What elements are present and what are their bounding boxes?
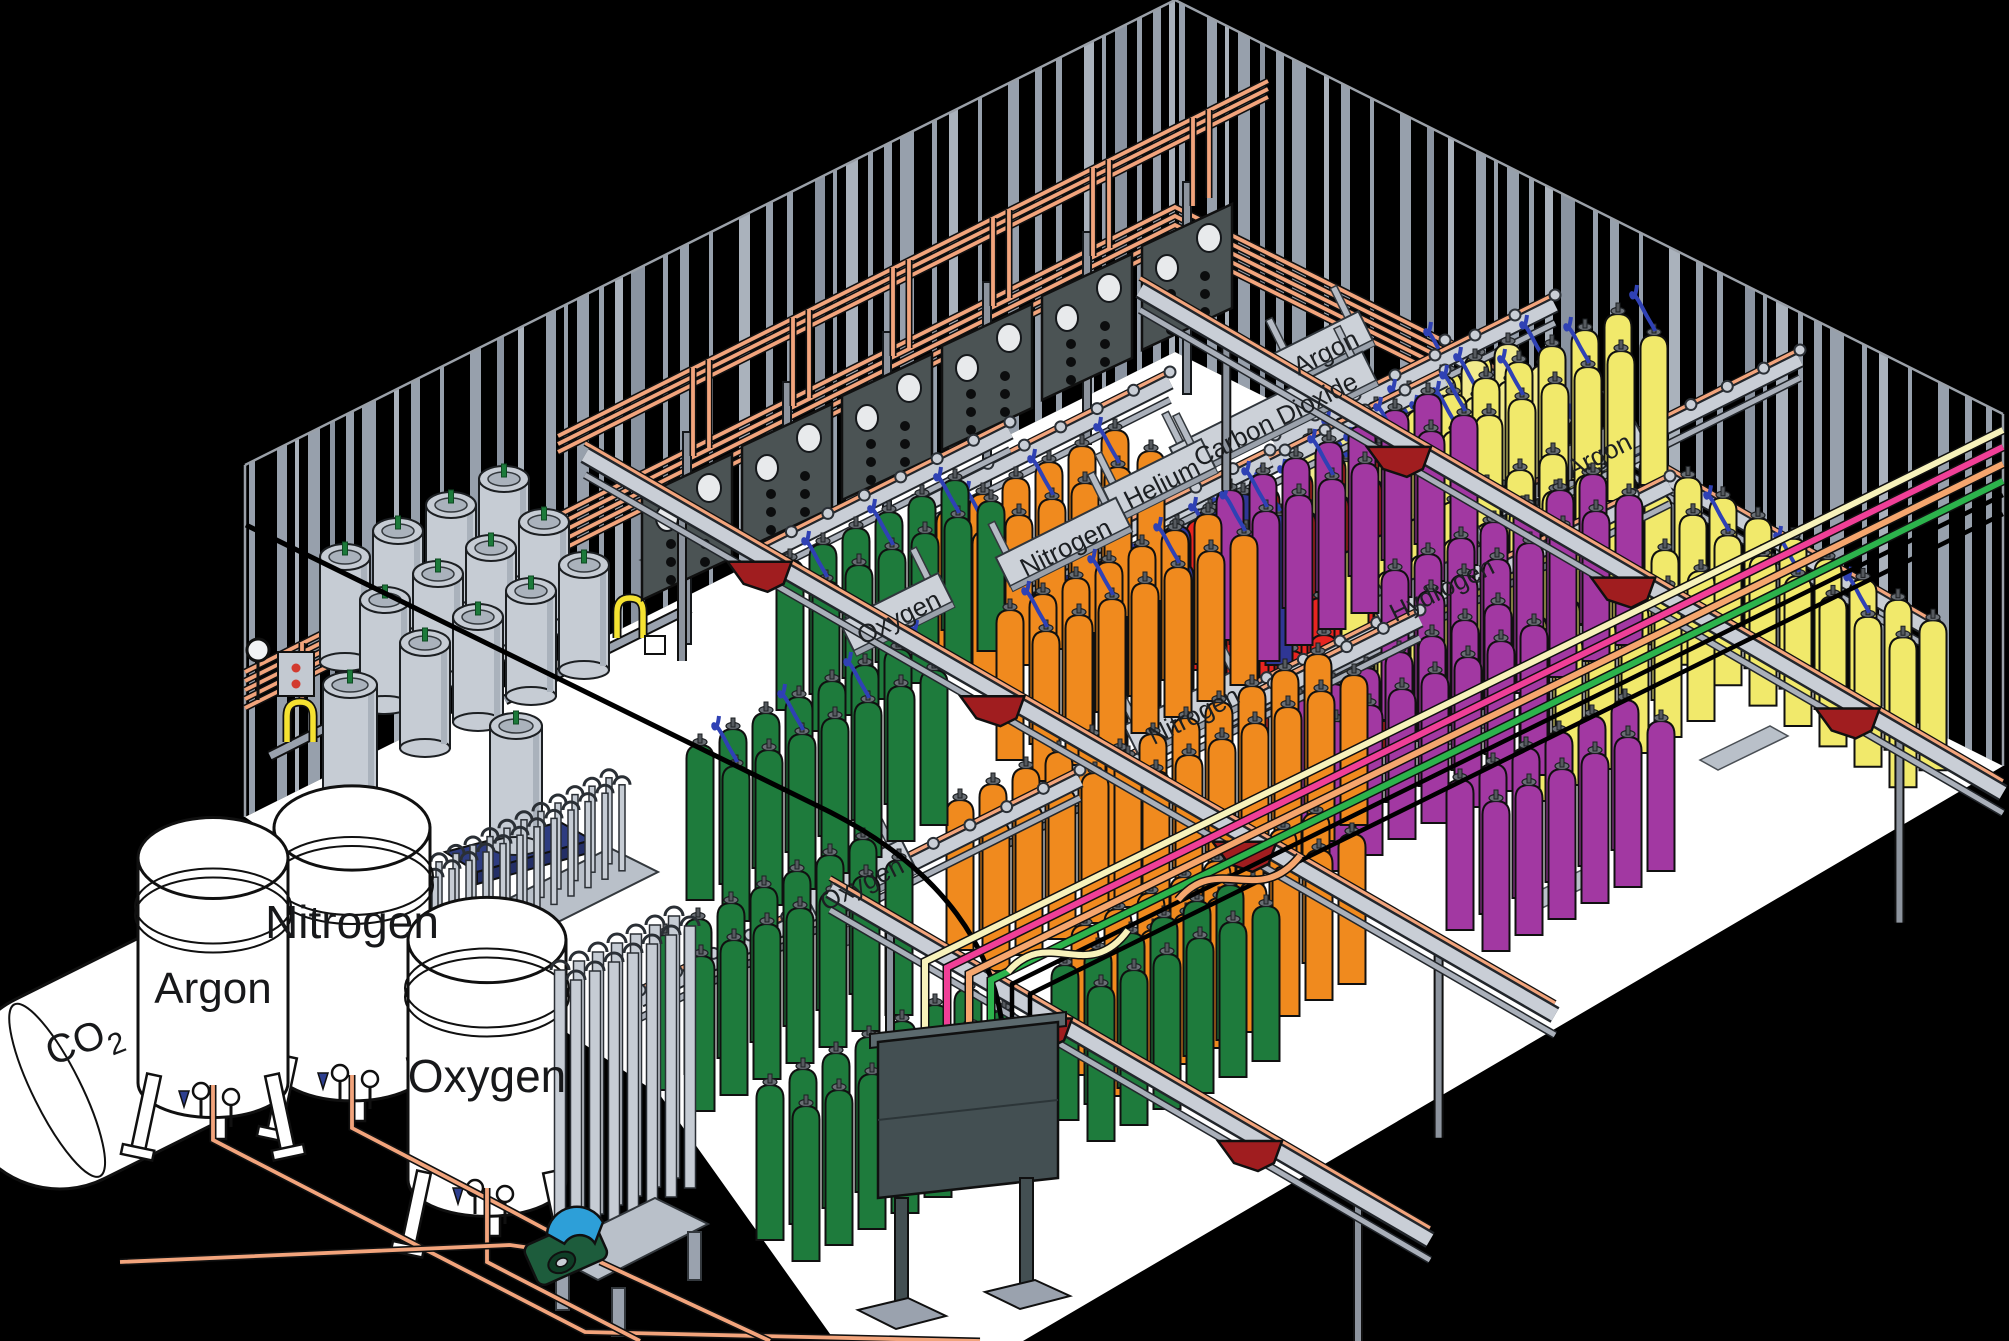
panel-port (766, 507, 776, 517)
cylinder-valve (1173, 519, 1177, 528)
cylinder-valve (1154, 760, 1158, 769)
cylinder-valve (1099, 975, 1103, 984)
cylinder-valve (833, 707, 837, 716)
cylinder-valve (821, 533, 825, 542)
regulator-fitting (1685, 399, 1696, 410)
vaporizer-fin (551, 818, 557, 904)
panel-port (866, 475, 876, 485)
cylinder-valve (1024, 757, 1028, 766)
dewar-valve (514, 711, 519, 724)
cylinder-valve (1017, 504, 1021, 513)
cylinder-valve (1113, 419, 1117, 428)
cylinder-valve (1517, 351, 1521, 360)
regulator-fitting (1341, 641, 1352, 652)
cylinder-valve (801, 1058, 805, 1067)
cylinder-valve (834, 1042, 838, 1051)
gas-cylinder (826, 1090, 853, 1245)
gas-cylinder (1165, 567, 1192, 717)
cylinder-valve (1253, 712, 1257, 721)
panel-gauge (756, 455, 778, 481)
cylinder-valve (953, 469, 957, 478)
valve-box (645, 636, 665, 654)
dewar-valve (529, 576, 534, 589)
regulator-fitting (932, 453, 943, 464)
panel-gauge (1156, 255, 1178, 281)
panel-gauge (897, 374, 921, 402)
cylinder-valve (1080, 435, 1084, 444)
panel-gauge (697, 474, 721, 502)
cylinder-valve (1619, 340, 1623, 349)
cylinder-valve (1426, 383, 1430, 392)
gas-cylinder (1648, 721, 1675, 871)
cylinder-valve (1532, 614, 1536, 623)
portable-dewar (506, 576, 556, 705)
cylinder-valve (1220, 728, 1224, 737)
cylinder-valve (788, 549, 792, 558)
dewar-valve (582, 550, 587, 563)
panel-port (800, 471, 810, 481)
cylinder-valve (1499, 630, 1503, 639)
cylinder-valve (1430, 625, 1434, 634)
cylinder-valve (899, 675, 903, 684)
regulator-fitting (1005, 417, 1016, 428)
cylinder-valve (1393, 399, 1397, 408)
regulator-fitting (1055, 421, 1066, 432)
cylinder-valve (1691, 504, 1695, 513)
cylinder-valve (1527, 774, 1531, 783)
cylinder-valve (1319, 680, 1323, 689)
cylinder-valve (1558, 479, 1562, 488)
regulator-fitting (1019, 440, 1030, 451)
cylinder-valve (1560, 758, 1564, 767)
cylinder-valve (1206, 503, 1210, 512)
regulator-fitting (1510, 310, 1521, 321)
cylinder-valve (1896, 589, 1900, 598)
cylinder-valve (870, 1063, 874, 1072)
tank-valve (223, 1089, 239, 1105)
bundle-tube (685, 926, 696, 1188)
cylinder-valve (1593, 742, 1597, 751)
cylinder-valve (1400, 678, 1404, 687)
dewar-valve (436, 559, 441, 572)
dewar-valve (476, 602, 481, 615)
gas-cylinder (1099, 599, 1126, 749)
gas-cylinder (921, 670, 948, 825)
gas-plant-scene: CO2 Argon Nitrogen Oxygen Oxygen Nitroge… (0, 0, 2009, 1341)
cylinder-valve (1506, 333, 1510, 342)
dewar-shade (494, 621, 500, 718)
regulator-fitting (1265, 445, 1276, 456)
cylinder-valve (1458, 769, 1462, 778)
cylinder-valve (857, 554, 861, 563)
cylinder-valve (699, 945, 703, 954)
vaporizer-fin (602, 793, 608, 879)
cylinder-valve (1352, 664, 1356, 673)
cylinder-valve (798, 897, 802, 906)
gas-cylinder (1198, 551, 1225, 701)
dewar-valve (489, 533, 494, 546)
panel-port (1000, 407, 1010, 417)
tank-valve (193, 1083, 209, 1099)
junction-panel-leg (1020, 1178, 1033, 1290)
bundle-tube (666, 935, 677, 1197)
cylinder-valve (765, 913, 769, 922)
cylinder-valve (1077, 604, 1081, 613)
cylinder-valve (1187, 744, 1191, 753)
junction-panel-leg (895, 1198, 908, 1308)
cylinder-valve (1663, 539, 1667, 548)
gas-cylinder (687, 745, 714, 900)
pressure-gauge (247, 639, 269, 661)
cylinder-valve (1626, 726, 1630, 735)
cylinder-valve (1484, 367, 1488, 376)
regulator-fitting (786, 526, 797, 537)
regulator-fitting (1001, 801, 1012, 812)
gas-cylinder (793, 1106, 820, 1261)
regulator-fitting (1470, 330, 1481, 341)
cylinder-valve (1132, 959, 1136, 968)
cylinder-valve (1494, 790, 1498, 799)
regulator-fitting (1550, 290, 1561, 301)
regulator-fitting (895, 471, 906, 482)
cylinder-valve (1363, 452, 1367, 461)
portable-dewar (453, 602, 503, 731)
dewar-valve (502, 464, 507, 477)
panel-port (1200, 271, 1210, 281)
cylinder-valve (828, 844, 832, 853)
dewar-valve (348, 670, 353, 683)
control-box (278, 652, 314, 696)
regulator-fitting (968, 435, 979, 446)
panel-gauge (797, 424, 821, 452)
oxygen-tank-label: Oxygen (408, 1050, 567, 1102)
vaporizer-fin (534, 827, 540, 913)
red-button (292, 680, 301, 689)
cylinder-valve (991, 773, 995, 782)
tank-dome (274, 786, 430, 870)
cylinder-valve (1107, 551, 1111, 560)
cylinder-valve (1686, 466, 1690, 475)
cylinder-valve (698, 734, 702, 743)
cylinder-valve (920, 485, 924, 494)
cylinder-valve (1047, 451, 1051, 460)
cylinder-valve (1198, 927, 1202, 936)
gas-plant-illustration: CO2 Argon Nitrogen Oxygen Oxygen Nitroge… (0, 0, 2009, 1341)
gas-cylinder (1608, 351, 1635, 501)
dewar-shade (600, 569, 606, 666)
tank-valve (497, 1186, 513, 1202)
dewar-valve (449, 490, 454, 503)
dewar-valve (423, 628, 428, 641)
regulator-fitting (928, 838, 939, 849)
panel-port (900, 421, 910, 431)
panel-gauge (1197, 224, 1221, 252)
cylinder-valve (797, 686, 801, 695)
gas-cylinder (1319, 479, 1346, 629)
cylinder-valve (1261, 463, 1265, 472)
cylinder-valve (1463, 609, 1467, 618)
gas-cylinder (1582, 753, 1609, 903)
cylinder-valve (1496, 593, 1500, 602)
panel-port (1066, 375, 1076, 385)
panel-port (966, 425, 976, 435)
cylinder-valve (764, 702, 768, 711)
cylinder-valve (767, 739, 771, 748)
panel-port (766, 489, 776, 499)
red-button (292, 664, 301, 673)
cylinder-valve (1550, 335, 1554, 344)
cylinder-valve (1350, 823, 1354, 832)
cylinder-valve (1426, 543, 1430, 552)
pallet-leg (688, 1232, 701, 1280)
cylinder-valve (1699, 560, 1703, 569)
gas-cylinder (1286, 495, 1313, 645)
portable-dewar (400, 628, 450, 757)
dewar-shade (441, 647, 447, 744)
gas-cylinder (754, 924, 781, 1079)
panel-port (1100, 339, 1110, 349)
cylinder-valve (958, 789, 962, 798)
gas-cylinder (888, 686, 915, 841)
cylinder-valve (837, 1079, 841, 1088)
cylinder-valve (1429, 420, 1433, 429)
cylinder-valve (1931, 609, 1935, 618)
regulator-fitting (1430, 350, 1441, 361)
panel-port (1000, 389, 1010, 399)
cylinder-valve (729, 892, 733, 901)
gas-cylinder (1549, 769, 1576, 919)
cylinder-valve (1118, 739, 1122, 748)
panel-gauge (1097, 274, 1121, 302)
regulator-fitting (1092, 403, 1103, 414)
cylinder-valve (1283, 659, 1287, 668)
cylinder-valve (1590, 705, 1594, 714)
cylinder-valve (1041, 583, 1045, 592)
bundle-tube (628, 953, 639, 1215)
panel-port (800, 507, 810, 517)
cylinder-valve (1008, 599, 1012, 608)
panel-port (1066, 339, 1076, 349)
cylinder-valve (762, 876, 766, 885)
gas-cylinder (1220, 922, 1247, 1077)
bundle-tube (571, 980, 582, 1242)
gas-cylinder (1352, 463, 1379, 613)
bundle-tube (609, 962, 620, 1224)
cylinder-valve (1433, 662, 1437, 671)
panel-port (666, 539, 676, 549)
vaporizer-fin (585, 802, 591, 888)
panel-gauge (856, 405, 878, 431)
cylinder-valve (1327, 431, 1331, 440)
cylinder-valve (1459, 527, 1463, 536)
dewar-valve (343, 542, 348, 555)
portable-dewar (559, 550, 609, 679)
cylinder-valve (1231, 911, 1235, 920)
dewar-valve (396, 516, 401, 529)
regulator-fitting (859, 490, 870, 501)
gas-cylinder (1615, 737, 1642, 887)
regulator-fitting (1795, 345, 1806, 356)
panel-port (866, 457, 876, 467)
cylinder-valve (1140, 535, 1144, 544)
cylinder-valve (1294, 447, 1298, 456)
panel-gauge (1056, 305, 1078, 331)
cylinder-valve (1250, 675, 1254, 684)
cylinder-valve (1623, 689, 1627, 698)
cylinder-valve (863, 654, 867, 663)
cylinder-valve (887, 501, 891, 510)
dewar-valve (542, 507, 547, 520)
panel-port (900, 439, 910, 449)
cylinder-valve (1209, 540, 1213, 549)
cylinder-valve (1901, 626, 1905, 635)
tank-valve (332, 1065, 348, 1081)
cylinder-valve (1616, 303, 1620, 312)
regulator-fitting (1758, 363, 1769, 374)
panel-port (1200, 289, 1210, 299)
cylinder-valve (1264, 895, 1268, 904)
gas-cylinder (787, 908, 814, 1063)
panel-port (1100, 357, 1110, 367)
panel-port (800, 489, 810, 499)
cylinder-valve (989, 490, 993, 499)
argon-tank-label: Argon (154, 964, 271, 1013)
cylinder-valve (732, 929, 736, 938)
regulator-fitting (1722, 381, 1733, 392)
gas-cylinder (757, 1085, 784, 1240)
nitrogen-tank-label: Nitrogen (265, 896, 439, 948)
cylinder-valve (696, 908, 700, 917)
cylinder-valve (1297, 484, 1301, 493)
vaporizer-fin (619, 785, 625, 871)
gas-cylinder (1483, 801, 1510, 951)
cylinder-valve (1149, 440, 1153, 449)
gas-cylinder (1641, 335, 1668, 485)
panel-port (666, 557, 676, 567)
regulator-fitting (965, 820, 976, 831)
panel-port (1100, 321, 1110, 331)
cylinder-valve (1518, 459, 1522, 468)
cylinder-valve (1861, 568, 1865, 577)
cylinder-valve (1473, 349, 1477, 358)
panel-gauge (997, 324, 1021, 352)
cylinder-valve (1317, 839, 1321, 848)
panel-port (866, 439, 876, 449)
cylinder-valve (1553, 372, 1557, 381)
tank-valve (362, 1071, 378, 1087)
dewar-shade (368, 689, 374, 796)
cylinder-valve (1831, 585, 1835, 594)
gas-cylinder (1253, 906, 1280, 1061)
cylinder-valve (1627, 484, 1631, 493)
cylinder-valve (1487, 404, 1491, 413)
regulator-fitting (1400, 385, 1411, 396)
panel-port (700, 557, 710, 567)
gas-cylinder (1516, 785, 1543, 935)
cylinder-valve (854, 517, 858, 526)
cylinder-valve (1074, 567, 1078, 576)
cylinder-valve (1014, 467, 1018, 476)
regulator-fitting (1390, 370, 1401, 381)
gas-cylinder (1187, 938, 1214, 1093)
gas-cylinder (721, 940, 748, 1095)
cylinder-valve (795, 860, 799, 869)
panel-port (766, 525, 776, 535)
cylinder-valve (1583, 319, 1587, 328)
regulator-fitting (1665, 471, 1676, 482)
cylinder-valve (1393, 559, 1397, 568)
bundle-tube (647, 944, 658, 1206)
cylinder-valve (1495, 548, 1499, 557)
cylinder-valve (933, 994, 937, 1003)
panel-port (966, 407, 976, 417)
cylinder-valve (1557, 721, 1561, 730)
cylinder-valve (981, 483, 985, 492)
cylinder-valve (768, 1074, 772, 1083)
panel-port (1066, 357, 1076, 367)
panel-port (666, 575, 676, 585)
cylinder-valve (1286, 696, 1290, 705)
cylinder-valve (1143, 572, 1147, 581)
regulator-fitting (1378, 623, 1389, 634)
cylinder-valve (900, 1010, 904, 1019)
cylinder-valve (923, 522, 927, 531)
cylinder-valve (1083, 472, 1087, 481)
cylinder-valve (1524, 737, 1528, 746)
cylinder-valve (1241, 483, 1245, 492)
cylinder-valve (1659, 710, 1663, 719)
panel-port (900, 457, 910, 467)
gas-cylinder (1231, 535, 1258, 685)
gas-cylinder (1132, 583, 1159, 733)
regulator-fitting (822, 508, 833, 519)
cylinder-valve (1466, 646, 1470, 655)
cylinder-valve (1594, 500, 1598, 509)
regulator-fitting (1165, 367, 1176, 378)
vaporizer-fin (568, 810, 574, 896)
panel-gauge (956, 355, 978, 381)
regulator-fitting (1038, 783, 1049, 794)
cylinder-valve (731, 718, 735, 727)
bundle-tube (590, 971, 601, 1233)
cylinder-valve (1491, 753, 1495, 762)
cylinder-valve (1721, 487, 1725, 496)
panel-port (966, 389, 976, 399)
gas-cylinder (1447, 780, 1474, 930)
panel-port (1000, 371, 1010, 381)
cylinder-valve (804, 1095, 808, 1104)
regulator-fitting (1128, 385, 1139, 396)
cylinder-valve (830, 670, 834, 679)
cylinder-valve (1756, 507, 1760, 516)
cylinder-valve (1316, 643, 1320, 652)
cylinder-valve (1165, 943, 1169, 952)
cylinder-valve (1551, 443, 1555, 452)
